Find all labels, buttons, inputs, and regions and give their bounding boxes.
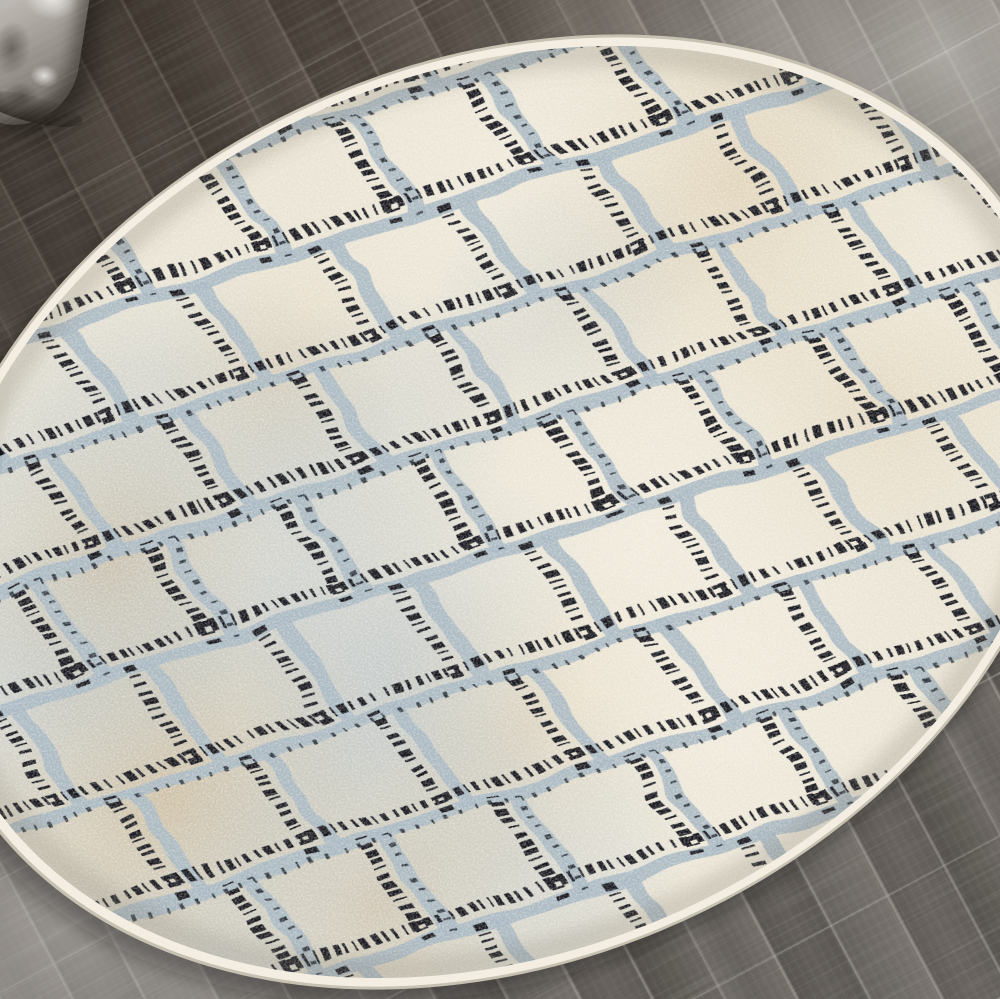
rug-and-texture-layer [0, 0, 1000, 999]
photo-scene [0, 0, 1000, 999]
